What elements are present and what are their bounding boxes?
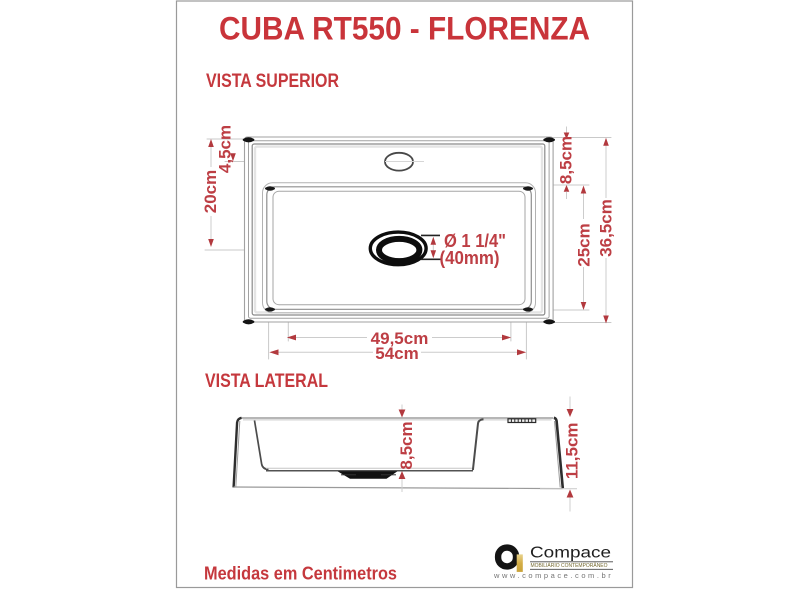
svg-text:Medidas em Centimetros: Medidas em Centimetros (204, 563, 397, 584)
svg-text:20cm: 20cm (201, 170, 220, 213)
svg-text:www.compace.com.br: www.compace.com.br (493, 571, 613, 580)
svg-text:25cm: 25cm (575, 223, 594, 266)
svg-text:54cm: 54cm (375, 344, 418, 363)
svg-text:Compace: Compace (530, 545, 611, 562)
svg-text:(40mm): (40mm) (440, 248, 500, 268)
svg-text:VISTA LATERAL: VISTA LATERAL (205, 371, 328, 392)
svg-text:36,5cm: 36,5cm (597, 199, 616, 257)
svg-text:4,5cm: 4,5cm (216, 125, 235, 173)
svg-text:8,5cm: 8,5cm (557, 136, 576, 184)
svg-text:MOBILIÁRIO CONTEMPORÂNEO: MOBILIÁRIO CONTEMPORÂNEO (531, 562, 609, 569)
svg-text:11,5cm: 11,5cm (563, 422, 582, 479)
svg-text:8,5cm: 8,5cm (397, 421, 416, 469)
svg-text:CUBA RT550 - FLORENZA: CUBA RT550 - FLORENZA (219, 11, 590, 47)
svg-text:VISTA SUPERIOR: VISTA SUPERIOR (206, 71, 339, 92)
